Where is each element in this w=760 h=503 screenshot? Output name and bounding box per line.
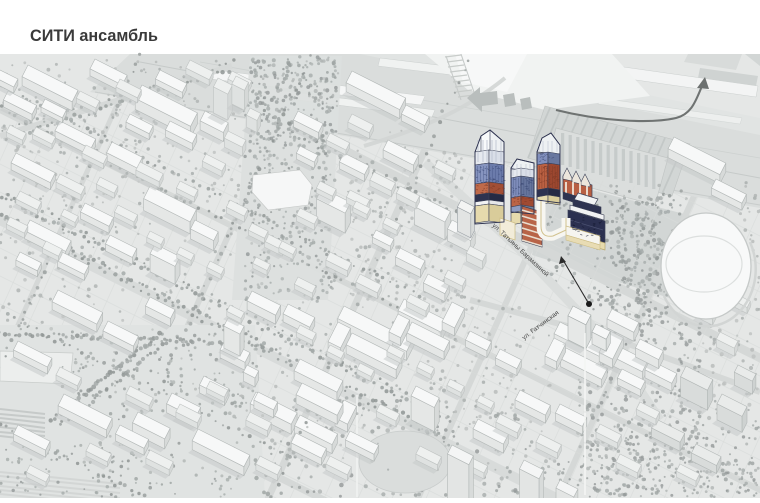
- svg-text:СИТИ ансамбль: СИТИ ансамбль: [30, 27, 158, 45]
